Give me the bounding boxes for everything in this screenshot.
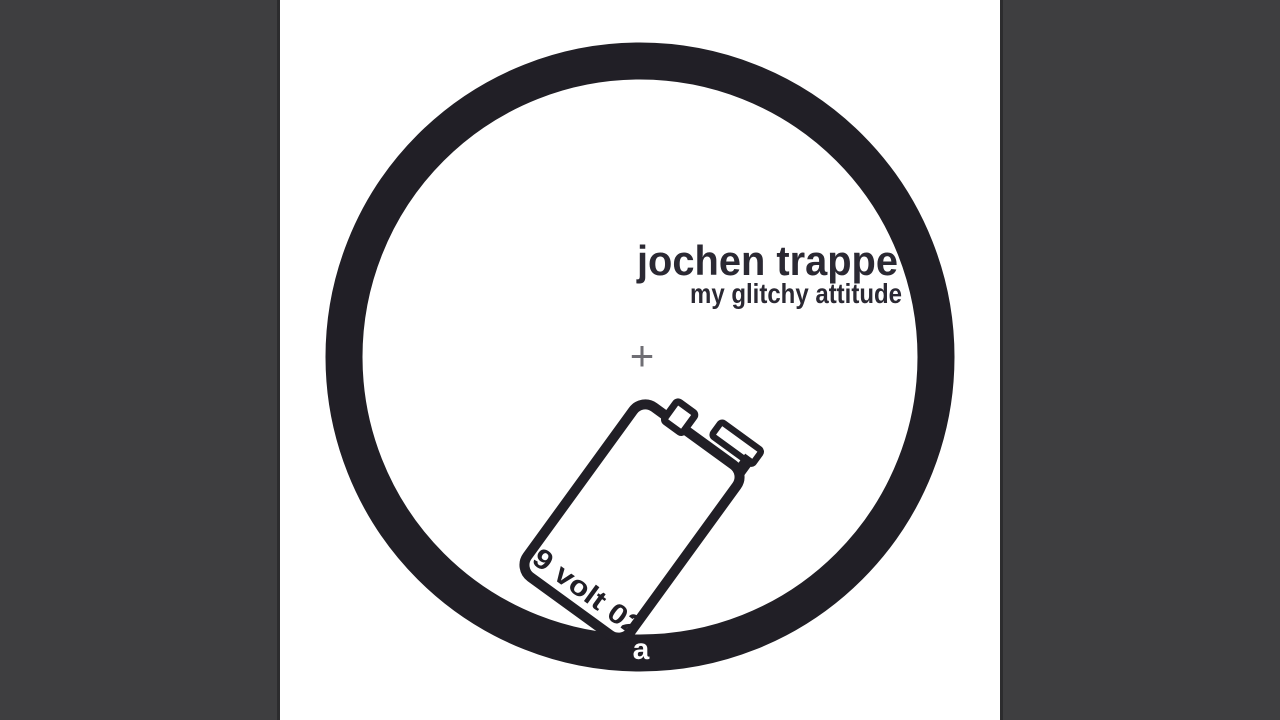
- record-label-artwork: jochen trappe my glitchy attitude + 9 vo…: [280, 0, 1000, 720]
- right-pillarbox-bar: [1000, 0, 1280, 720]
- track-title: my glitchy attitude: [690, 278, 902, 309]
- battery-icon: 9 volt 02: [519, 376, 767, 647]
- artist-name: jochen trappe: [636, 237, 898, 284]
- center-plus-icon: +: [630, 332, 655, 379]
- video-frame: jochen trappe my glitchy attitude + 9 vo…: [0, 0, 1280, 720]
- side-a-label: a: [633, 633, 650, 666]
- left-pillarbox-bar: [0, 0, 280, 720]
